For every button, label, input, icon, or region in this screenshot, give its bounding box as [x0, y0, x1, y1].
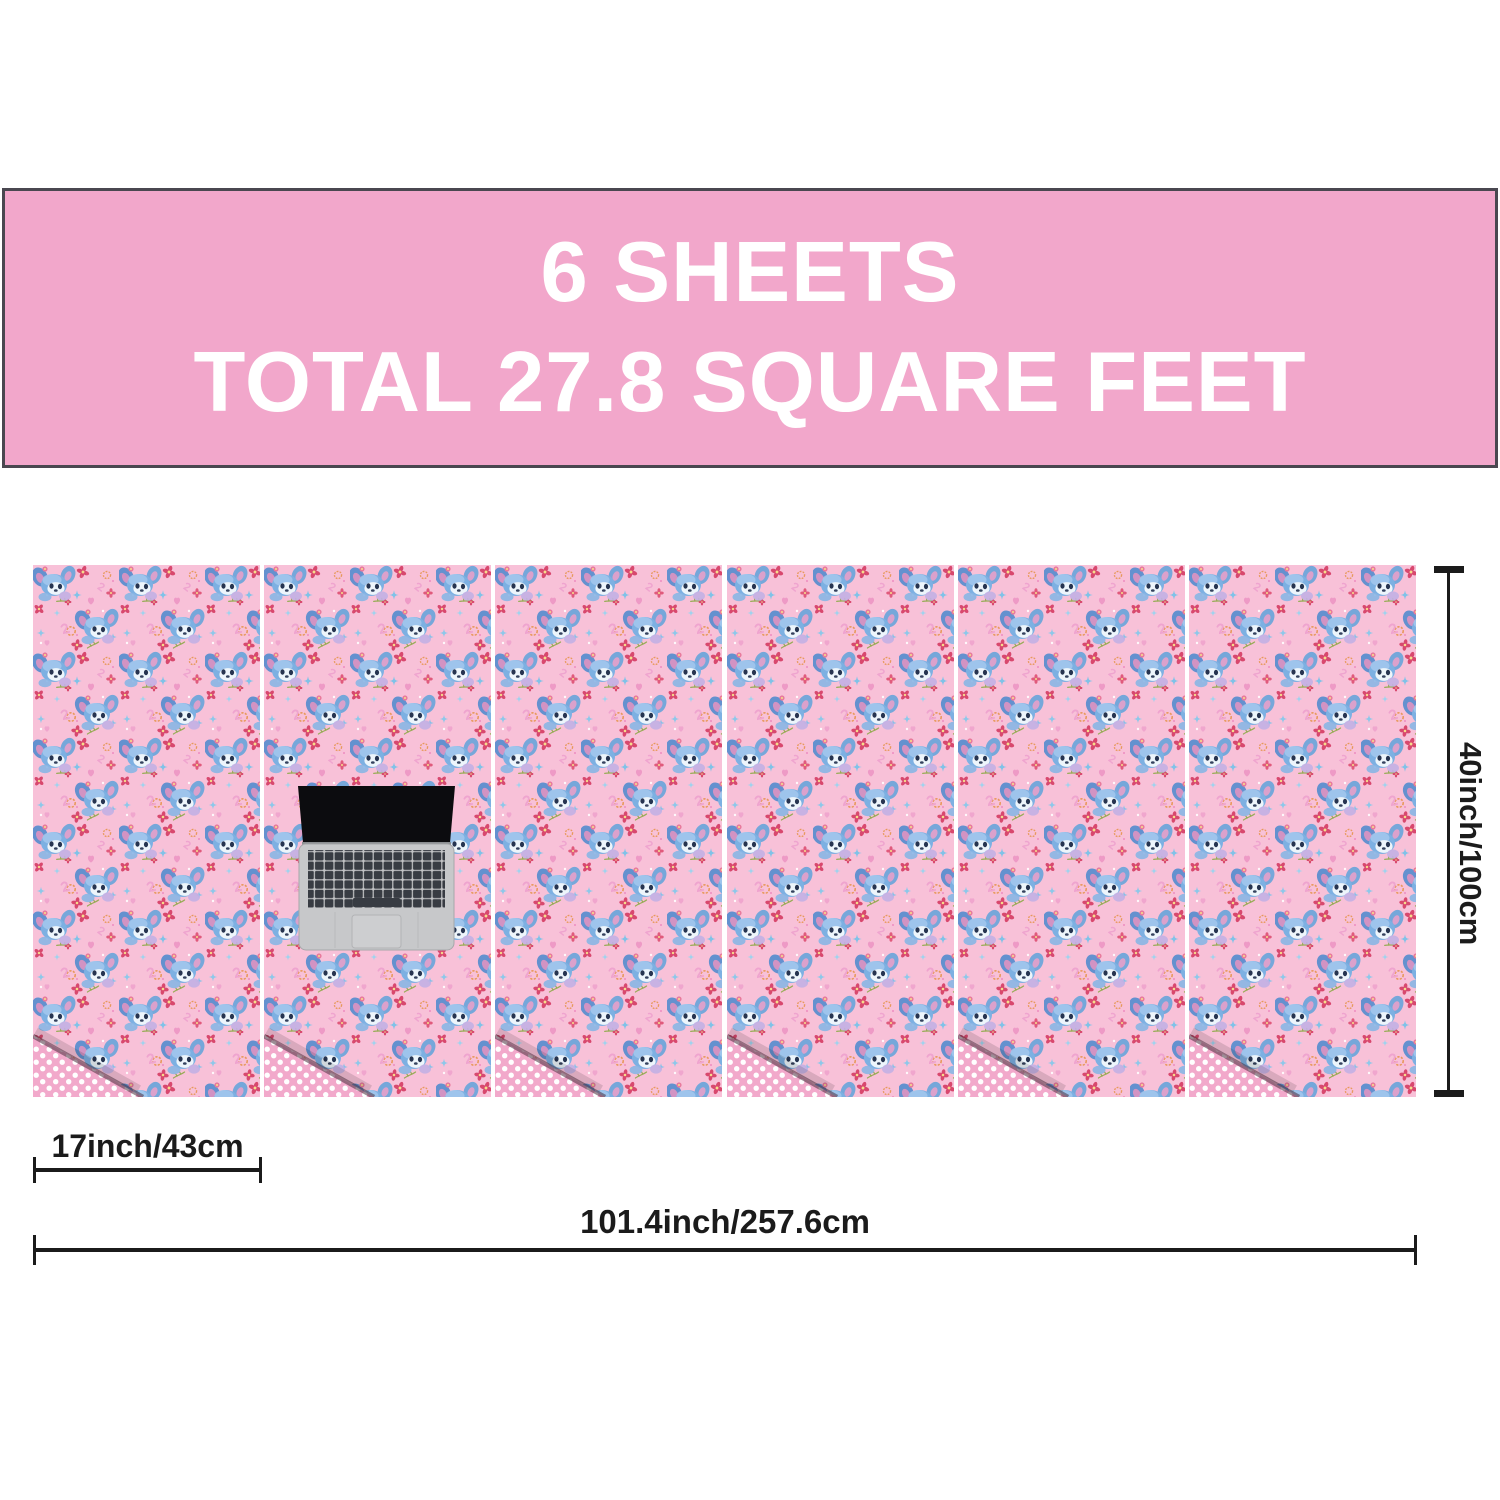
sheet-5 — [958, 565, 1185, 1097]
sheet-1 — [33, 565, 260, 1097]
sheet-width-dimension-line — [33, 1168, 262, 1172]
height-dimension-label: 40inch/100cm — [1452, 742, 1488, 945]
laptop-screen — [298, 786, 455, 843]
sheet-6 — [1189, 565, 1416, 1097]
banner: 6 SHEETS TOTAL 27.8 SQUARE FEET — [2, 188, 1498, 468]
sheets-row — [33, 565, 1416, 1097]
laptop-spacebar — [353, 898, 400, 907]
banner-title-line-2: TOTAL 27.8 SQUARE FEET — [193, 331, 1306, 435]
total-width-cap-left — [33, 1235, 36, 1265]
height-dimension-line — [1447, 566, 1450, 1097]
sheet-width-cap-right — [259, 1157, 262, 1183]
banner-title-line-1: 6 SHEETS — [541, 221, 960, 325]
sheet-width-cap-left — [33, 1157, 36, 1183]
sheet-width-dimension-label: 17inch/43cm — [33, 1128, 262, 1165]
laptop-icon — [295, 786, 458, 953]
height-dimension-cap-bottom — [1434, 1090, 1464, 1097]
laptop-trackpad — [352, 915, 401, 948]
total-width-cap-right — [1414, 1235, 1417, 1265]
total-width-dimension-line — [33, 1248, 1417, 1252]
sheet-3 — [495, 565, 722, 1097]
height-dimension-cap-top — [1434, 566, 1464, 573]
sheet-4 — [727, 565, 954, 1097]
product-infographic: 6 SHEETS TOTAL 27.8 SQUARE FEET 40inch/1… — [0, 0, 1500, 1500]
total-width-dimension-label: 101.4inch/257.6cm — [33, 1203, 1417, 1241]
